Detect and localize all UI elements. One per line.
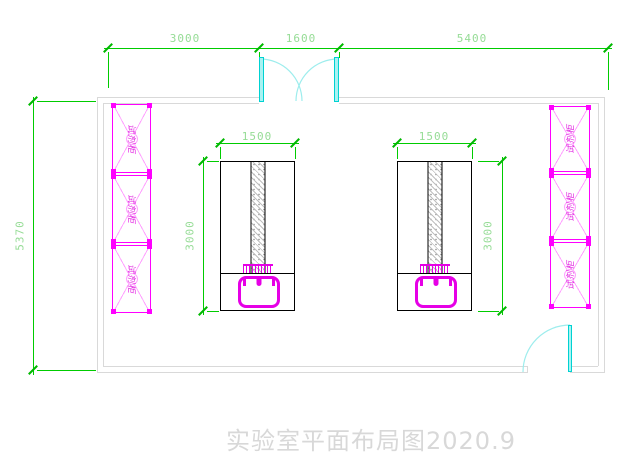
witness-line [37, 370, 96, 371]
wall-right-inner [598, 103, 599, 366]
faucet-drop [256, 279, 261, 286]
bench-hatch-strip [427, 162, 442, 273]
reagent-cabinet: 试剂柜 [550, 174, 590, 240]
wall-top-outer-right [339, 97, 605, 98]
cabinet-label: 试剂柜 [125, 264, 138, 294]
witness-line [339, 52, 340, 58]
faucet-drop [433, 279, 438, 286]
dim-room-depth: 5370 [14, 214, 27, 258]
cabinet-label: 试剂柜 [125, 123, 138, 153]
wall-bottom-inner-left [103, 366, 527, 367]
reagent-cabinet: 试剂柜 [112, 104, 151, 173]
dimension-line [393, 143, 476, 144]
cabinet-label: 试剂柜 [564, 260, 577, 290]
door-leaf-left [259, 57, 264, 102]
cabinet-label: 试剂柜 [564, 192, 577, 222]
door-swing-arc [521, 323, 572, 373]
dimension-line [502, 157, 503, 315]
sink-basin [415, 276, 457, 308]
sink [238, 264, 278, 308]
dim-bench-left-width: 1500 [217, 130, 297, 143]
bench-hatch-strip [250, 162, 265, 273]
dim-bench-right-depth: 3000 [482, 214, 495, 258]
door-swing-arcs [259, 55, 339, 102]
cabinet-label: 试剂柜 [564, 124, 577, 154]
witness-line [37, 101, 96, 102]
sink [415, 264, 455, 308]
sink-basin [238, 276, 280, 308]
dimension-line [216, 143, 299, 144]
door-leaf-right [334, 57, 339, 102]
dim-top-left: 3000 [145, 32, 225, 45]
reagent-cabinet: 试剂柜 [112, 175, 151, 243]
wall-right-outer [604, 97, 605, 373]
witness-line [220, 147, 221, 159]
wall-bottom-outer-left [97, 372, 527, 373]
dim-top-right: 5400 [432, 32, 512, 45]
dimension-line [33, 97, 34, 375]
witness-line [295, 147, 296, 159]
lab-bench-left [220, 161, 295, 311]
wall-bottom-outer-right [570, 372, 604, 373]
sink-grate [420, 264, 450, 273]
witness-line [397, 147, 398, 159]
wall-top-outer-left [97, 97, 259, 98]
wall-left-outer [97, 97, 98, 373]
drawing-title: 实验室平面布局图2020.9 [226, 421, 516, 456]
witness-line [478, 311, 499, 312]
dim-top-mid: 1600 [261, 32, 341, 45]
lab-bench-right [397, 161, 472, 311]
wall-top-inner-right [339, 103, 598, 104]
witness-line [472, 147, 473, 159]
sink-grate [243, 264, 273, 273]
witness-line [207, 161, 219, 162]
dimension-line [104, 48, 612, 49]
witness-line [478, 161, 499, 162]
reagent-cabinet: 试剂柜 [550, 106, 590, 172]
witness-line [608, 52, 609, 90]
wall-left-inner [103, 103, 104, 366]
reagent-cabinet: 试剂柜 [112, 245, 151, 313]
reagent-cabinet: 试剂柜 [550, 242, 590, 308]
dimension-line [203, 157, 204, 315]
floor-plan-drawing: 3000 1600 5400 5370 试剂柜 [0, 0, 619, 469]
dim-bench-right-width: 1500 [394, 130, 474, 143]
witness-line [207, 311, 219, 312]
door-leaf [568, 325, 572, 372]
wall-bottom-inner-right [570, 366, 598, 367]
dim-bench-left-depth: 3000 [184, 214, 197, 258]
witness-line [108, 52, 109, 88]
cabinet-label: 试剂柜 [125, 194, 138, 224]
